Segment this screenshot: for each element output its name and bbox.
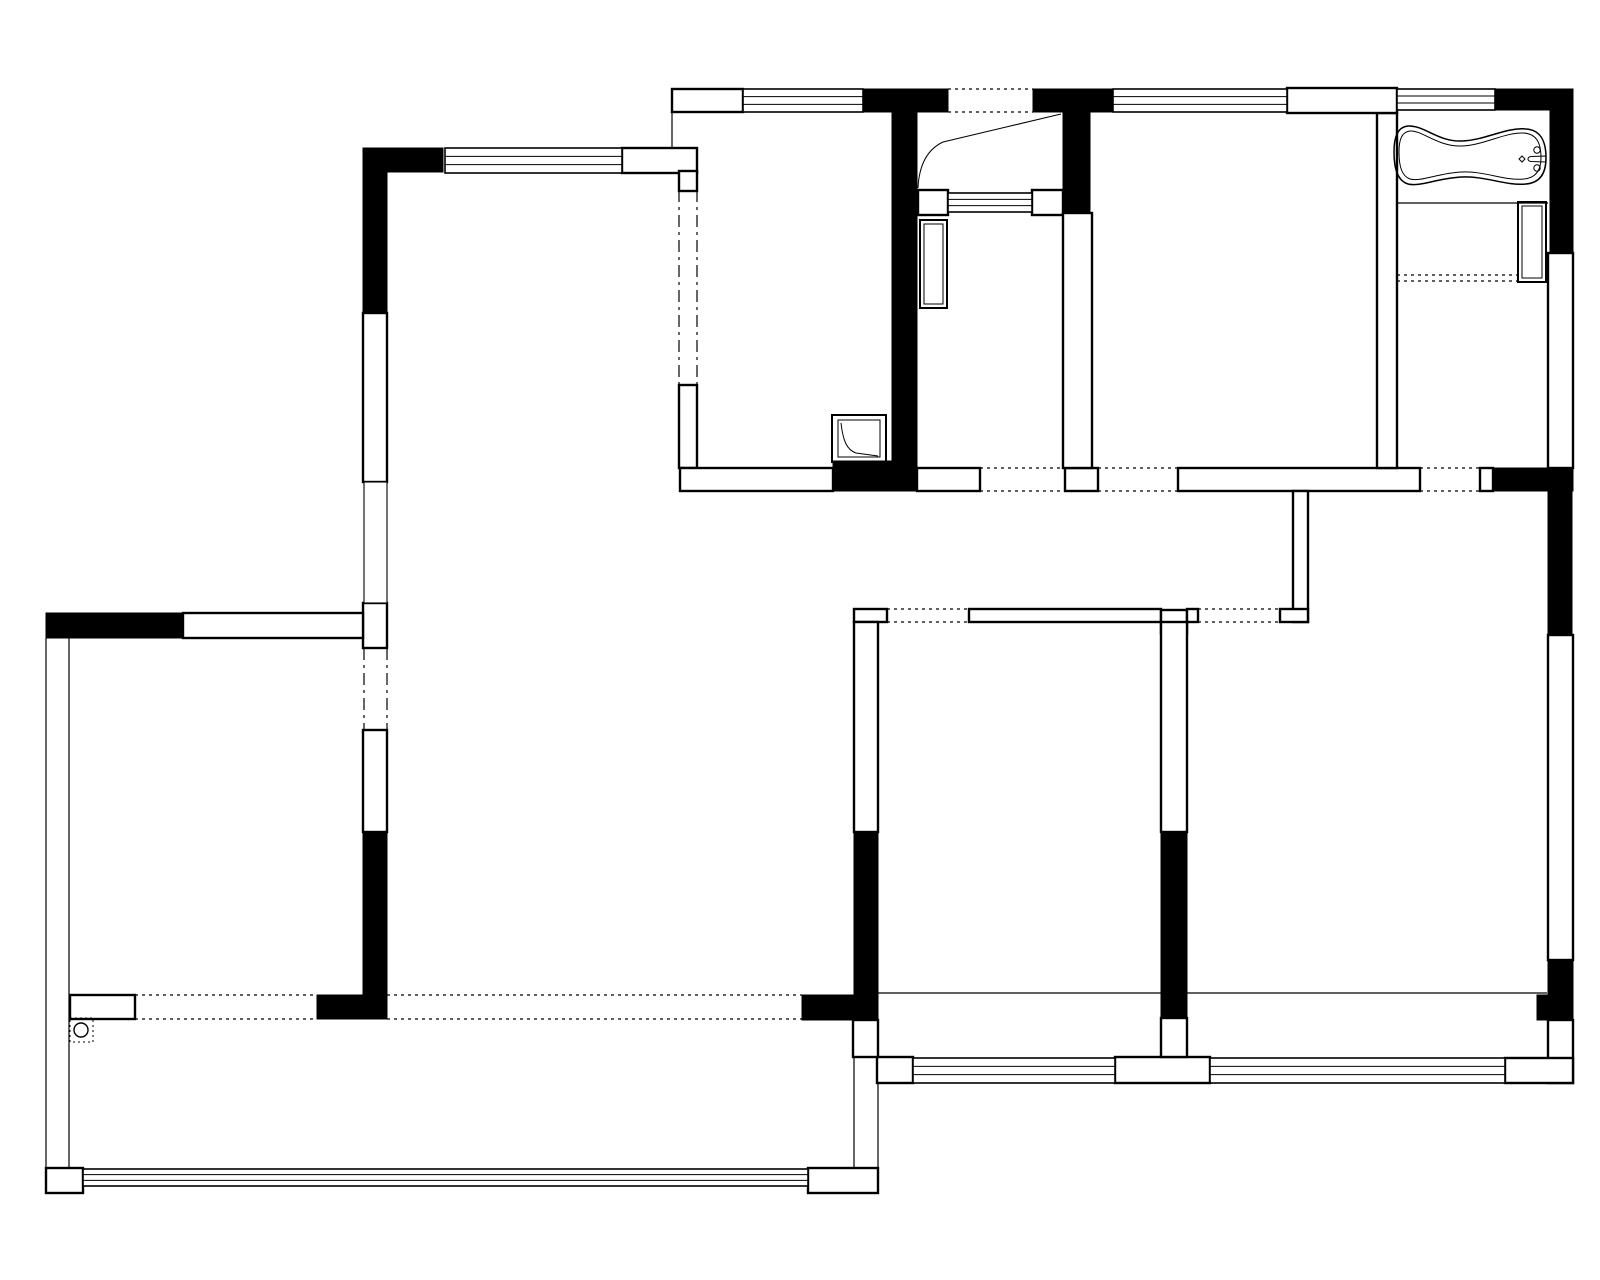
wall-solid <box>317 995 387 1019</box>
wall-outline <box>1280 609 1308 622</box>
wall-outline <box>680 468 833 491</box>
wall-outline <box>1293 491 1308 622</box>
bathroom-counter-inner <box>1522 206 1542 278</box>
entry-door-swing <box>918 114 1061 188</box>
entry-cabinet-inner <box>924 224 943 304</box>
bathtub-drain <box>1519 156 1525 162</box>
wall-solid <box>1161 832 1187 1020</box>
wall-solid <box>1063 112 1090 213</box>
wall-outline <box>918 190 948 215</box>
wall-outline <box>969 609 1161 622</box>
wall-solid <box>1493 89 1573 110</box>
window-frame <box>1113 89 1287 112</box>
wall-outline <box>808 1168 878 1193</box>
window-frame <box>1210 1058 1505 1083</box>
wall-outline <box>1505 1058 1573 1083</box>
wall-outline <box>679 171 697 191</box>
kitchen-appliance-curve <box>841 423 878 456</box>
wall-outline <box>853 1020 878 1057</box>
wall-outline <box>1187 609 1198 622</box>
bathtub-faucet-knob <box>1534 147 1540 153</box>
wall-outline <box>1178 468 1420 491</box>
wall-outline <box>70 995 135 1019</box>
wall-outline <box>877 1057 913 1083</box>
wall-solid <box>363 832 387 995</box>
wall-outline <box>1287 88 1397 113</box>
wall-outline <box>1032 190 1063 215</box>
wall-outline <box>1161 622 1187 832</box>
wall-solid <box>892 112 917 491</box>
wall-solid <box>1550 110 1573 253</box>
wall-solid <box>363 148 387 313</box>
wall-outline <box>1063 213 1092 468</box>
wall-solid <box>1548 960 1573 1020</box>
wall-outline <box>622 148 697 173</box>
wall-outline <box>1480 468 1493 491</box>
bathtub <box>1394 126 1546 185</box>
wall-outline <box>1377 113 1397 468</box>
fixture-group <box>74 114 1546 1037</box>
floor-plan-svg <box>0 0 1600 1280</box>
wall-outline <box>1548 635 1573 960</box>
wall-outline <box>46 1168 83 1193</box>
wall-solid <box>863 89 948 112</box>
wall-outline <box>183 613 363 638</box>
window-frame <box>913 1058 1115 1083</box>
wall-outline <box>363 313 387 482</box>
wall-solid <box>1548 468 1572 635</box>
wall-outline <box>1115 1057 1210 1083</box>
window-frame <box>83 1169 808 1186</box>
bathtub-faucet-spout <box>1528 156 1546 162</box>
window-frame <box>743 89 863 112</box>
structural-walls-group <box>46 88 1573 1193</box>
wall-outline <box>917 468 980 491</box>
floor-drain <box>74 1023 88 1037</box>
window-frame <box>445 148 622 173</box>
wall-solid <box>1033 89 1113 112</box>
wall-outline <box>1065 468 1098 491</box>
wall-thin <box>364 482 387 603</box>
window-frame <box>948 193 1032 212</box>
window-frame <box>1397 89 1495 110</box>
floor-plan-page <box>0 0 1600 1280</box>
wall-solid <box>833 461 917 491</box>
wall-outline <box>363 603 387 648</box>
wall-outline <box>672 89 743 112</box>
wall-solid <box>46 613 183 638</box>
wall-outline <box>1161 1018 1187 1057</box>
kitchen-appliance <box>832 415 886 462</box>
wall-solid <box>1537 995 1550 1020</box>
wall-outline <box>854 609 887 622</box>
wall-outline <box>363 730 387 832</box>
wall-outline <box>679 385 697 468</box>
wall-solid <box>854 832 878 1020</box>
wall-outline <box>1548 253 1573 468</box>
wall-outline <box>854 622 878 832</box>
bathtub-inner-rim <box>1399 131 1541 180</box>
